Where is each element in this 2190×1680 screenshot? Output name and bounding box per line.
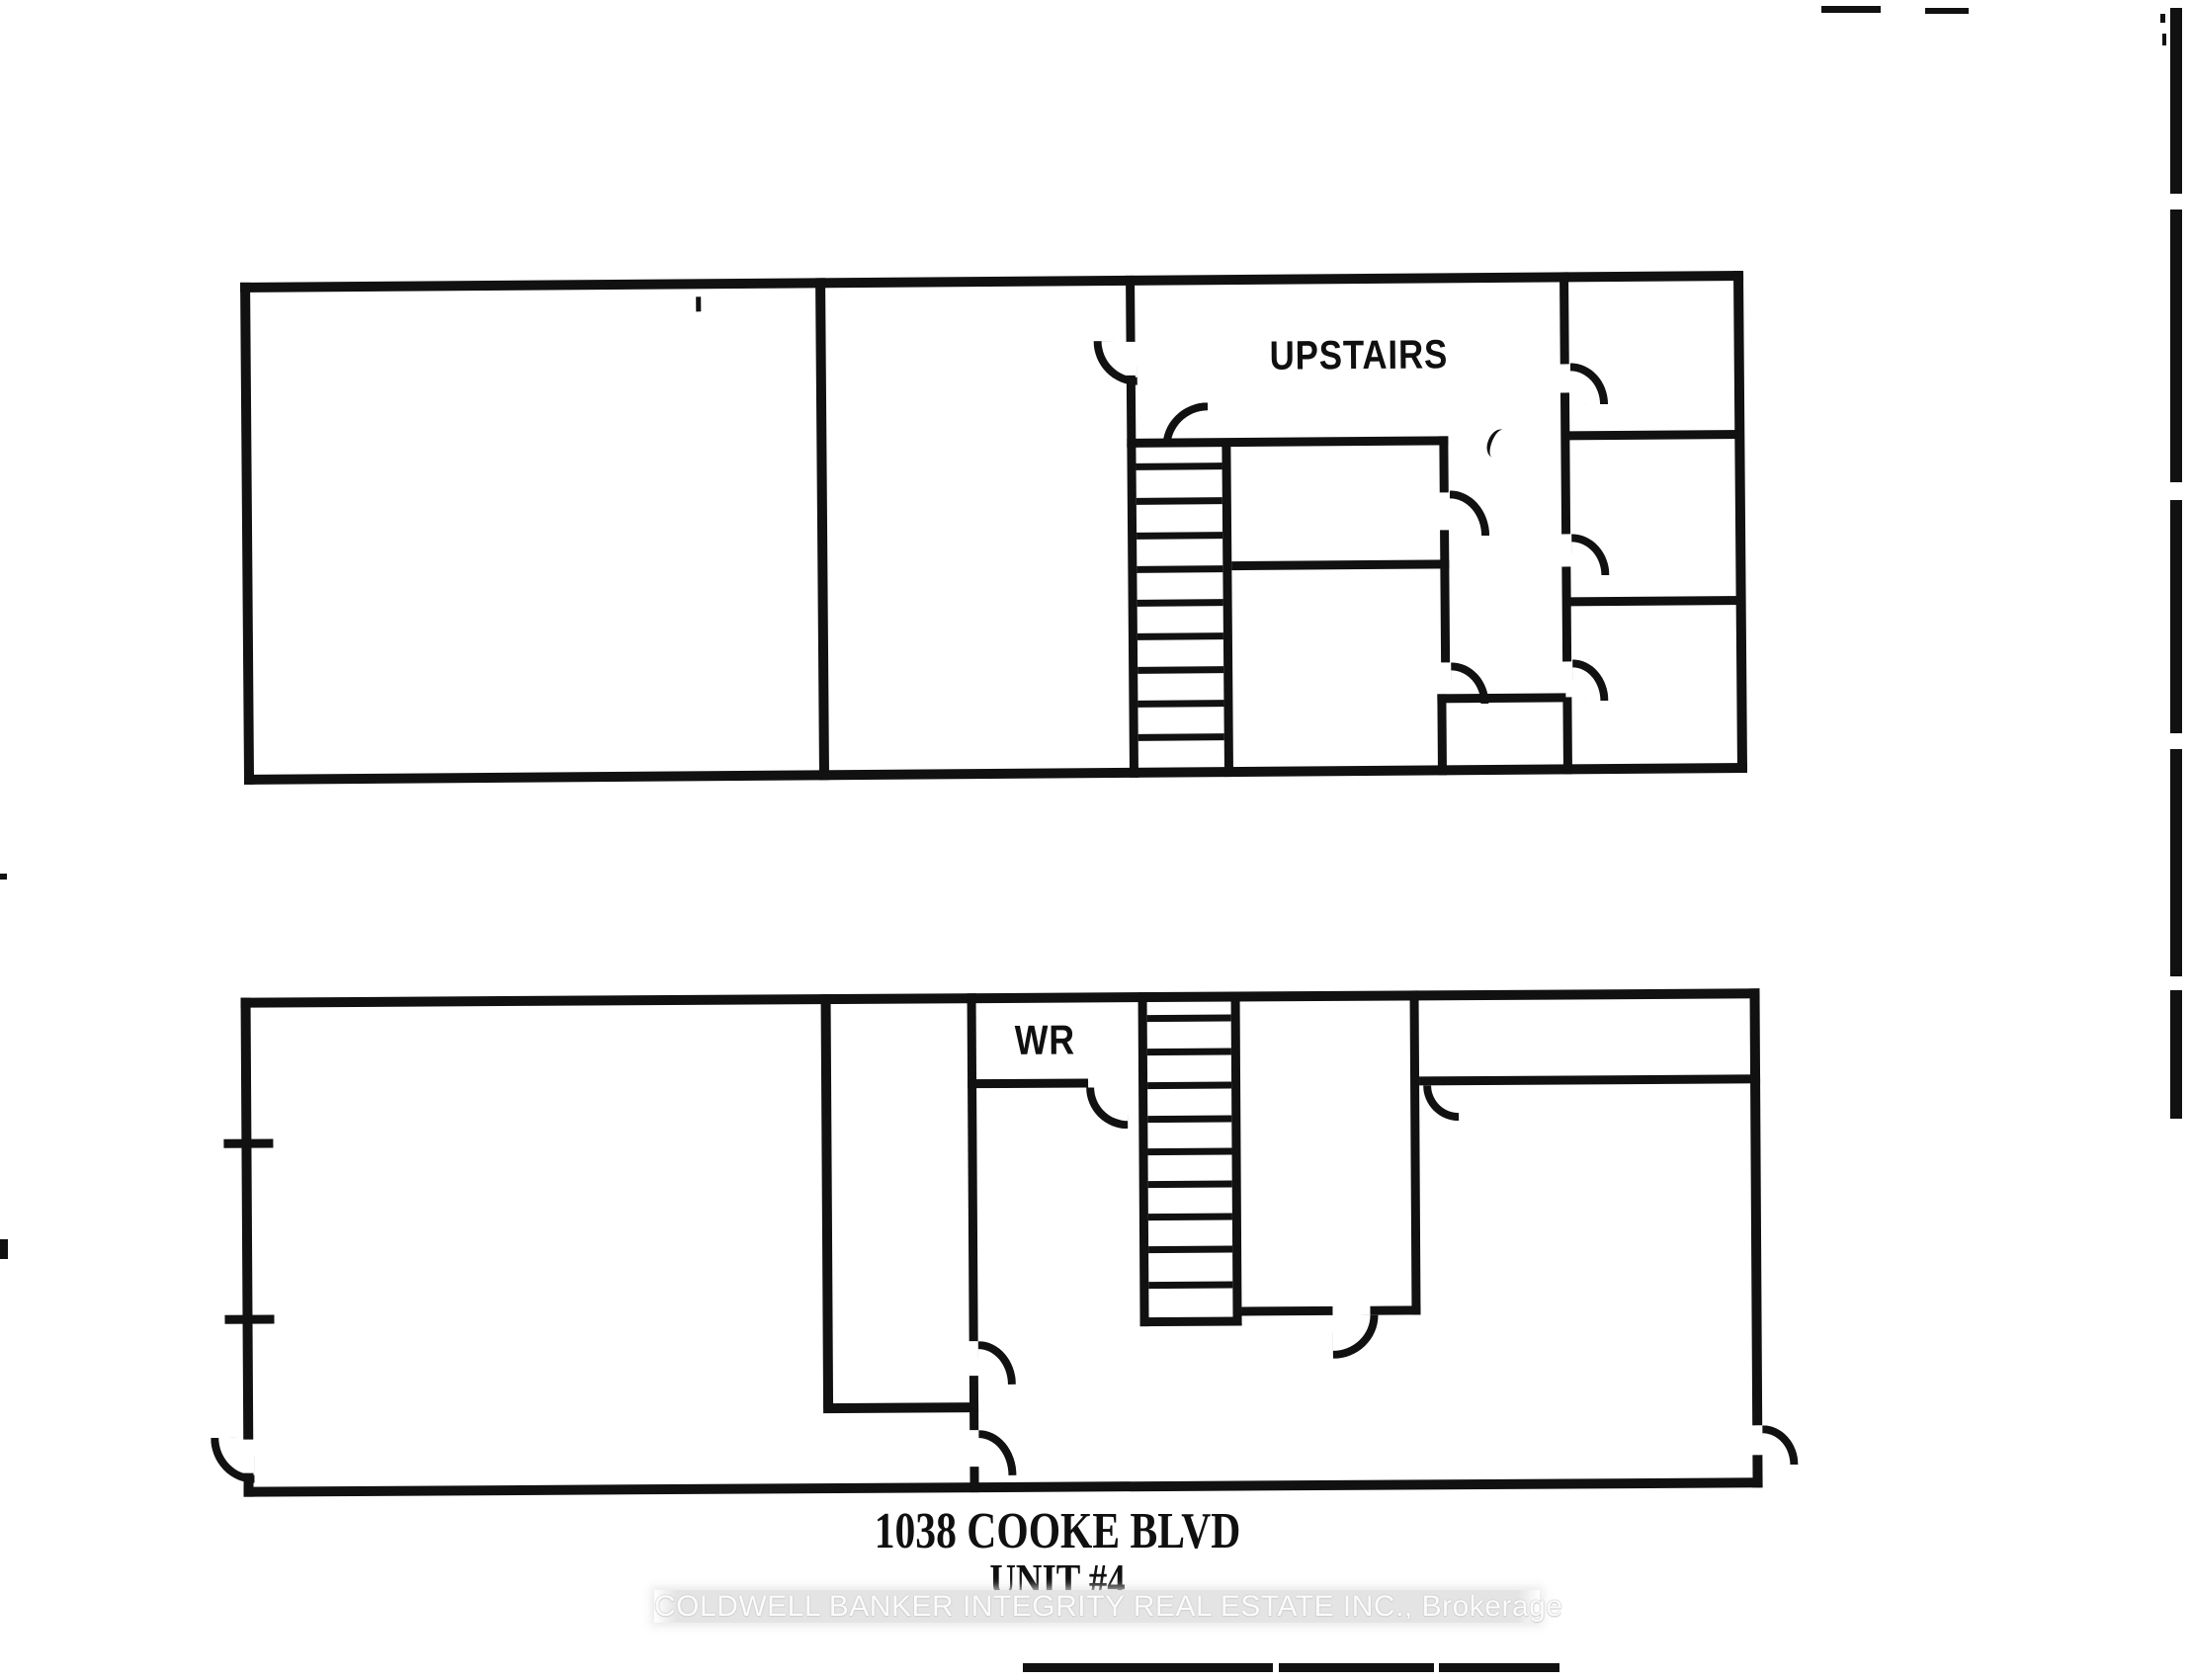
scan-artifact (0, 1239, 8, 1259)
scan-artifact-gap (2170, 482, 2182, 500)
scan-artifacts (0, 0, 2190, 1672)
scan-artifact (2160, 14, 2165, 23)
scan-artifact-gap (1434, 1663, 1439, 1672)
scan-artifact (0, 874, 7, 880)
scan-artifact (1023, 1663, 1559, 1672)
scan-artifact-gap (2170, 194, 2182, 210)
scanned-floor-plan-page: { "colors": { "background": "#ffffff", "… (0, 0, 2190, 1672)
scan-artifact (2170, 8, 2182, 1119)
scan-artifact (2162, 34, 2166, 45)
scan-artifact (1821, 6, 1881, 13)
scan-artifact (1925, 8, 1969, 14)
scan-artifact-gap (1273, 1663, 1279, 1672)
scan-artifact-gap (2170, 976, 2182, 990)
scan-artifact-gap (2170, 733, 2182, 749)
